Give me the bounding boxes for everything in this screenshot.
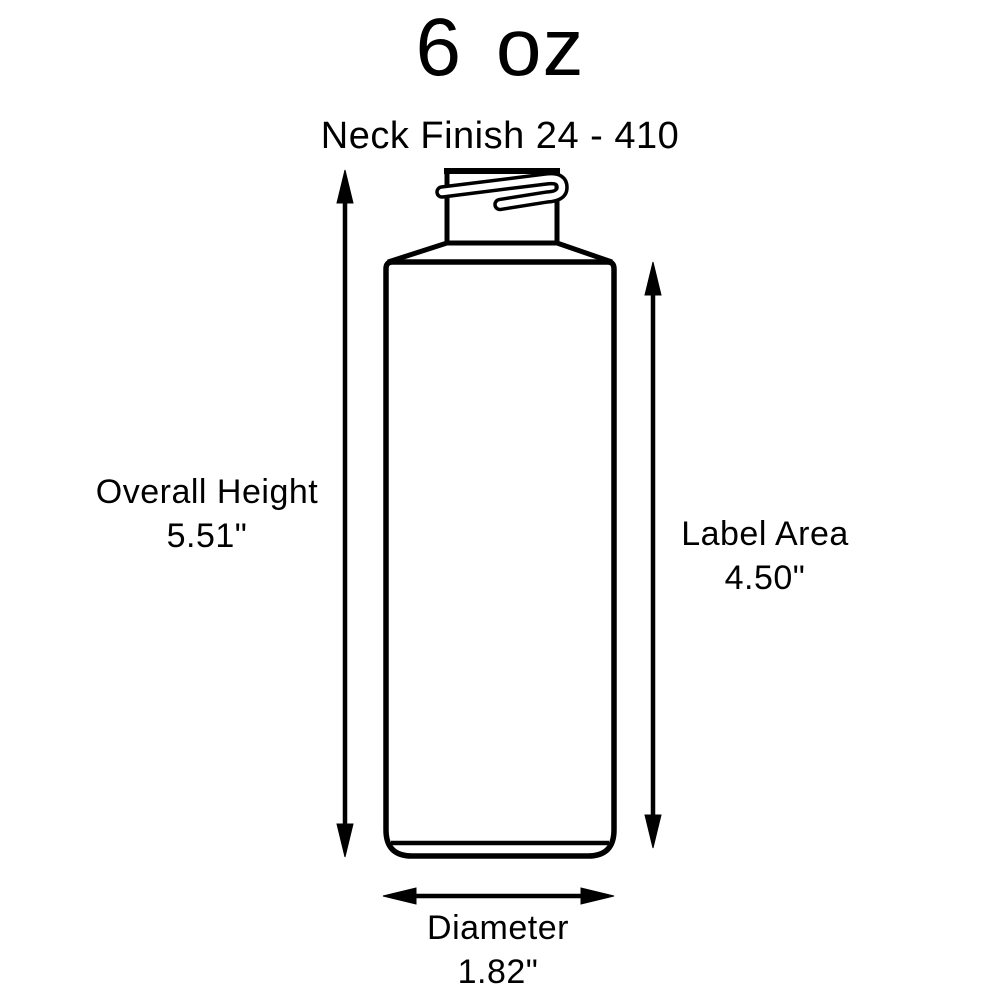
overall-height-value: 5.51" — [37, 514, 377, 558]
bottle-shoulder-left — [388, 243, 447, 262]
diameter-arrow — [383, 888, 614, 904]
arrow-up-icon — [337, 170, 353, 203]
arrow-up-icon — [645, 262, 661, 295]
diameter-value: 1.82" — [348, 950, 648, 994]
label-area-value: 4.50" — [620, 556, 910, 600]
arrow-left-icon — [383, 888, 416, 904]
overall-height-label: Overall Height — [37, 470, 377, 514]
bottle-dimension-diagram: 6 oz Neck Finish 24 - 410 — [0, 0, 1000, 1000]
bottle-drawing — [386, 171, 614, 856]
diameter-dimension: Diameter 1.82" — [348, 906, 648, 994]
arrow-down-icon — [645, 815, 661, 848]
overall-height-dimension: Overall Height 5.51" — [37, 470, 377, 558]
arrow-right-icon — [581, 888, 614, 904]
bottle-shoulder-right — [557, 243, 612, 262]
diameter-label: Diameter — [348, 906, 648, 950]
neck-thread-icon — [442, 179, 562, 205]
arrow-down-icon — [337, 824, 353, 857]
bottle-body — [386, 262, 614, 856]
label-area-label: Label Area — [620, 512, 910, 556]
label-area-dimension: Label Area 4.50" — [620, 512, 910, 600]
